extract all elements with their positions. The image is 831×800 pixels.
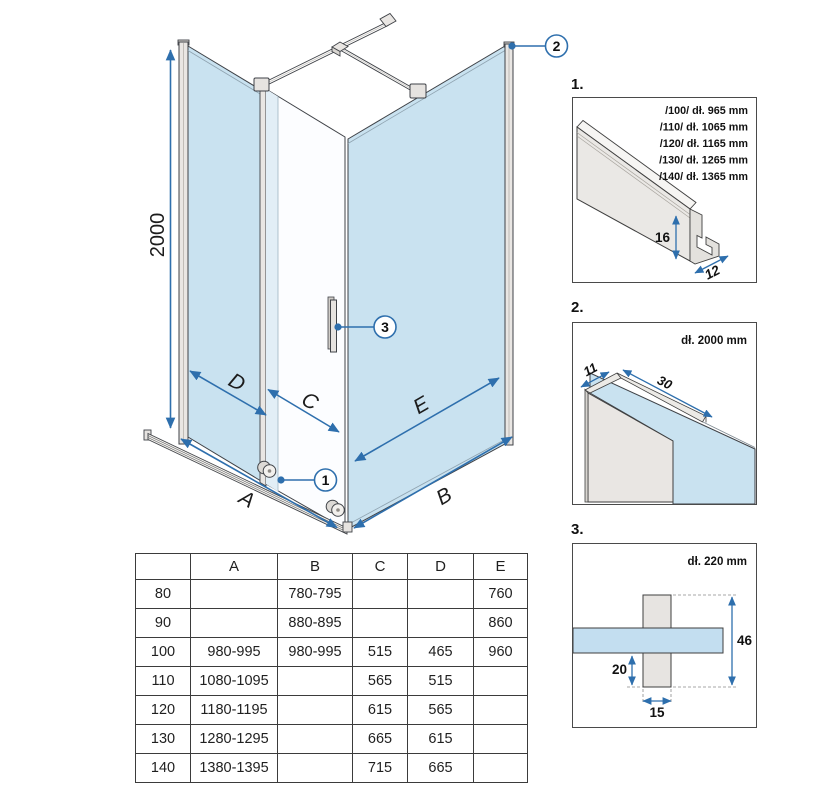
callout-2: 2 (508, 35, 567, 57)
table-header-cell: B (278, 554, 353, 580)
table-cell: 960 (474, 638, 528, 667)
table-header-row: A B C D E (136, 554, 528, 580)
table-header-cell: A (191, 554, 278, 580)
detail-1-drawing: 16 12 /100/ dł. 965 mm /110/ dł. 1065 mm… (573, 98, 756, 282)
table-row: 90 880-895 860 (136, 609, 528, 638)
table-cell: 80 (136, 580, 191, 609)
table-header-cell (136, 554, 191, 580)
left-wall-profile (178, 40, 189, 444)
detail-3-drawing: 46 20 15 dł. 220 mm (573, 544, 756, 727)
wall-profile-corner-isometric (585, 373, 755, 504)
table-cell (353, 609, 408, 638)
main-diagram: 2000 D C E A B 1 2 3 (0, 0, 570, 545)
table-cell: 140 (136, 754, 191, 783)
table-cell: 760 (474, 580, 528, 609)
length-option: /130/ dł. 1265 mm (659, 155, 748, 167)
table-cell (353, 580, 408, 609)
table-cell (474, 696, 528, 725)
table-cell (474, 754, 528, 783)
table-cell: 615 (353, 696, 408, 725)
height-dim-label: 2000 (147, 213, 169, 258)
table-cell: 980-995 (278, 638, 353, 667)
table-cell (474, 667, 528, 696)
detail-3-length-title: dł. 220 mm (688, 556, 747, 568)
table-row: 120 1180-1195 615 565 (136, 696, 528, 725)
table-cell (408, 609, 474, 638)
dim-label-46: 46 (737, 633, 753, 648)
right-wall-profile (504, 42, 514, 445)
length-option: /120/ dł. 1165 mm (660, 138, 748, 150)
callout-3-number: 3 (381, 319, 389, 335)
table-cell: 1280-1295 (191, 725, 278, 754)
table-cell: 90 (136, 609, 191, 638)
table-cell (278, 725, 353, 754)
table-cell: 1180-1195 (191, 696, 278, 725)
detail-3-label: 3. (571, 521, 584, 538)
table-cell: 120 (136, 696, 191, 725)
table-row: 140 1380-1395 715 665 (136, 754, 528, 783)
table-cell (474, 725, 528, 754)
detail-2-length-title: dł. 2000 mm (681, 335, 747, 347)
dim-label-16: 16 (655, 230, 671, 245)
table-cell: 1380-1395 (191, 754, 278, 783)
table-cell: 860 (474, 609, 528, 638)
table-cell: 980-995 (191, 638, 278, 667)
table-row: 130 1280-1295 665 615 (136, 725, 528, 754)
dim-label-12: 12 (702, 262, 723, 282)
left-fixed-glass-panel (188, 46, 261, 481)
door-handle (328, 297, 337, 352)
detail-2-drawing: 11 30 dł. 2000 mm (573, 323, 756, 504)
table-row: 100 980-995 980-995 515 465 960 (136, 638, 528, 667)
length-option: /110/ dł. 1065 mm (660, 122, 748, 134)
table-cell: 715 (353, 754, 408, 783)
handle-cross-section (573, 595, 723, 687)
dim-label-B: B (432, 483, 456, 510)
table-cell: 515 (353, 638, 408, 667)
detail-3-box: 46 20 15 dł. 220 mm (572, 543, 757, 728)
glass-bar (573, 628, 723, 653)
callout-1-number: 1 (322, 472, 330, 488)
table-cell (278, 667, 353, 696)
table-cell: 565 (353, 667, 408, 696)
table-row: 110 1080-1095 565 515 (136, 667, 528, 696)
table-cell: 565 (408, 696, 474, 725)
table-cell: 615 (408, 725, 474, 754)
dim-label-30: 30 (655, 372, 675, 392)
dim-label-15: 15 (649, 705, 665, 720)
top-support-bars (254, 14, 426, 99)
table-cell: 110 (136, 667, 191, 696)
detail-2-label: 2. (571, 299, 584, 316)
table-header-cell: D (408, 554, 474, 580)
table-cell: 515 (408, 667, 474, 696)
table-cell (278, 696, 353, 725)
table-header-cell: C (353, 554, 408, 580)
length-option: /140/ dł. 1365 mm (659, 171, 748, 183)
table-cell: 880-895 (278, 609, 353, 638)
table-cell: 130 (136, 725, 191, 754)
detail-1-label: 1. (571, 76, 584, 93)
table-header-cell: E (474, 554, 528, 580)
table-cell: 780-795 (278, 580, 353, 609)
table-cell (408, 580, 474, 609)
dimensions-table: A B C D E 80 780-795 760 90 880-895 860 … (135, 553, 528, 783)
middle-post-profile (260, 84, 266, 486)
table-cell: 100 (136, 638, 191, 667)
detail-2-box: 11 30 dł. 2000 mm (572, 322, 757, 505)
table-cell (191, 580, 278, 609)
callout-2-number: 2 (553, 38, 561, 54)
length-option: /100/ dł. 965 mm (665, 105, 748, 117)
table-cell: 1080-1095 (191, 667, 278, 696)
length-variant-list: /100/ dł. 965 mm /110/ dł. 1065 mm /120/… (659, 105, 748, 183)
table-row: 80 780-795 760 (136, 580, 528, 609)
table-cell: 465 (408, 638, 474, 667)
table-cell (191, 609, 278, 638)
shower-enclosure-spec-sheet: 2000 D C E A B 1 2 3 1. (0, 0, 831, 800)
right-glass-bracket (410, 84, 426, 98)
right-fixed-glass-panel (348, 46, 505, 529)
table-cell: 665 (408, 754, 474, 783)
dim-label-20: 20 (612, 662, 627, 677)
table-cell (278, 754, 353, 783)
detail-1-box: 16 12 /100/ dł. 965 mm /110/ dł. 1065 mm… (572, 97, 757, 283)
left-glass-bracket (254, 78, 269, 91)
table-cell: 665 (353, 725, 408, 754)
